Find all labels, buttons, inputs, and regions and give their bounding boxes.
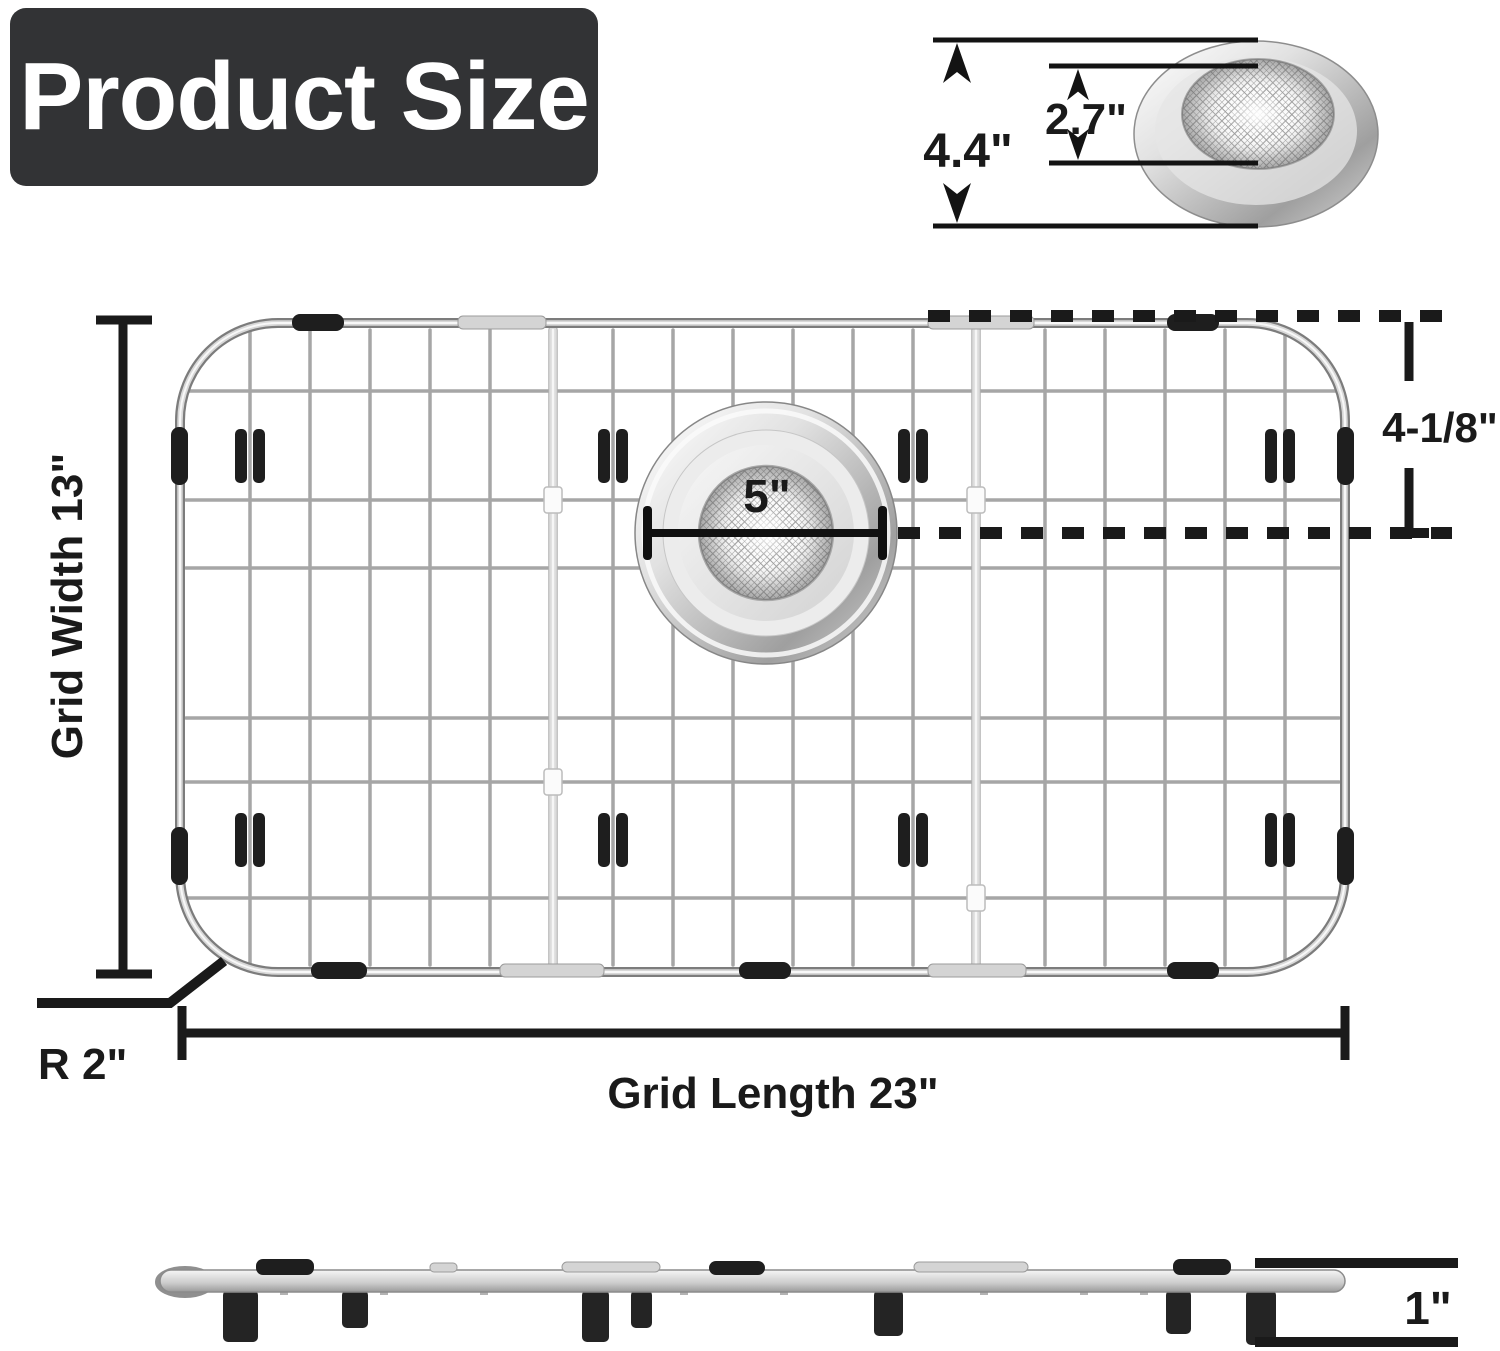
drain-offset-label: 4-1/8" — [1382, 404, 1498, 451]
mesh-diameter-label: 2.7" — [1045, 95, 1127, 144]
grid-length-label: Grid Length 23" — [607, 1069, 938, 1118]
grid-width-dimension: Grid Width 13" — [43, 320, 152, 974]
corner-radius-callout: R 2" — [37, 961, 224, 1089]
outer-diameter-label: 4.4" — [923, 125, 1012, 178]
side-view — [158, 1259, 1345, 1345]
arrow-down-icon — [943, 183, 971, 223]
strainer-top-view — [1134, 41, 1378, 227]
height-label: 1" — [1404, 1282, 1451, 1334]
grid-width-label: Grid Width 13" — [43, 453, 92, 759]
side-feet — [223, 1290, 1276, 1345]
arrow-up-icon — [943, 43, 971, 83]
drain-diameter-label: 5" — [743, 470, 790, 522]
grid-length-dimension: Grid Length 23" — [182, 1006, 1345, 1118]
sink-grid — [171, 314, 1354, 979]
diagram-svg: 4.4" 2.7" — [0, 0, 1500, 1351]
product-size-diagram: Product Size — [0, 0, 1500, 1351]
corner-radius-label: R 2" — [38, 1040, 127, 1089]
